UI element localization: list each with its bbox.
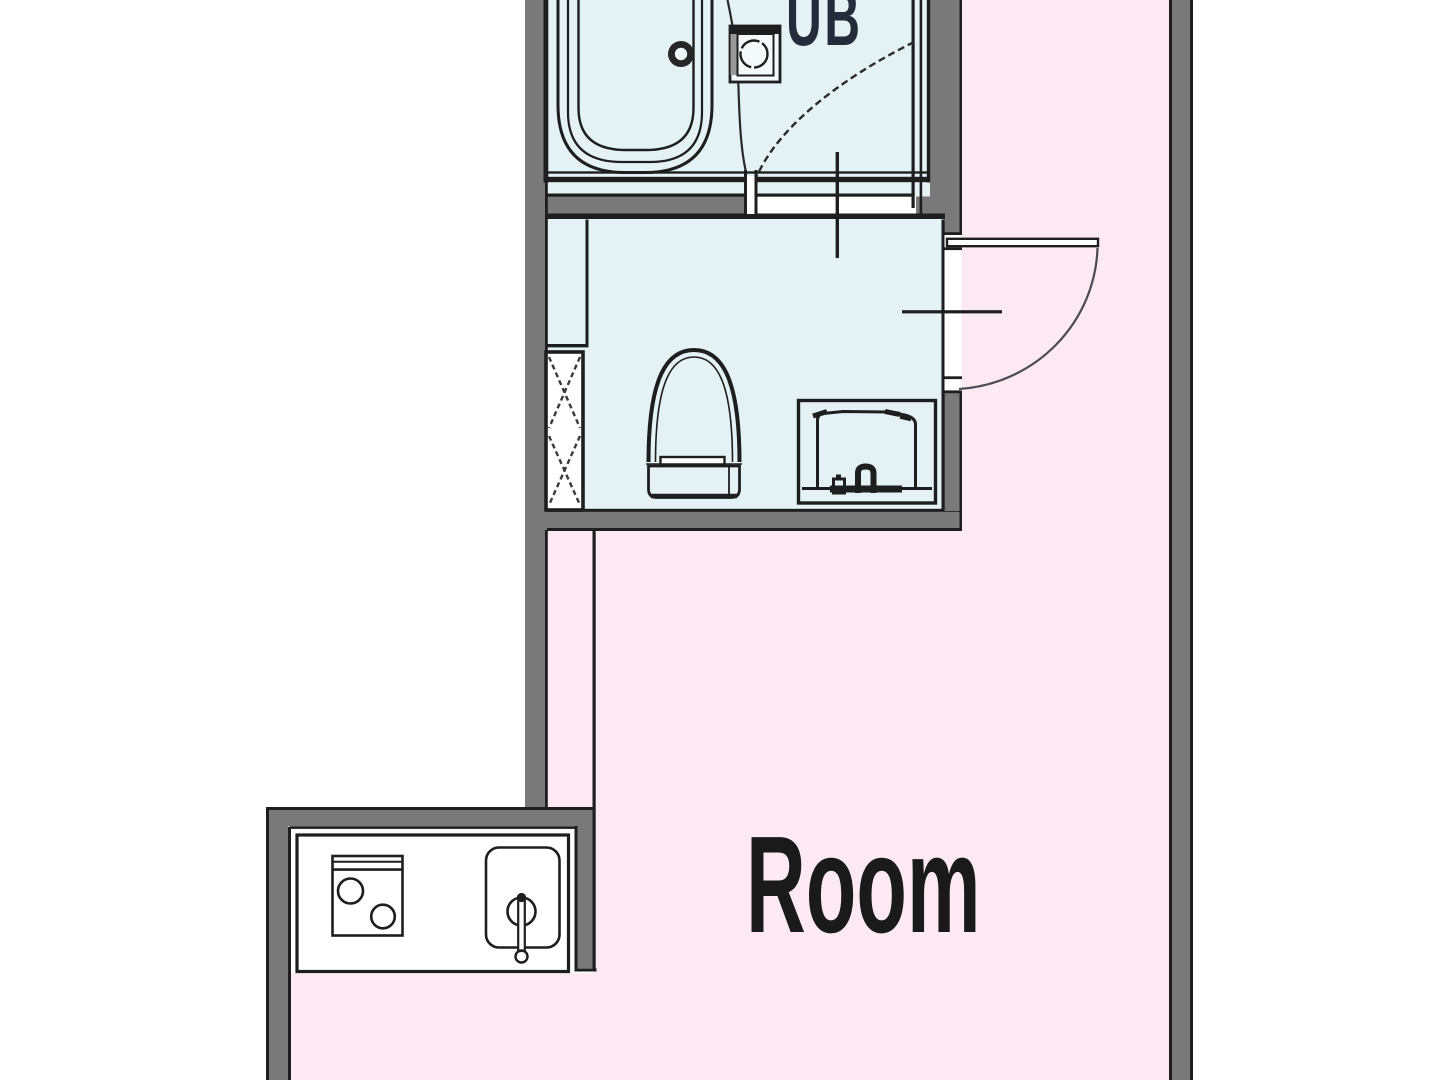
svg-text:UB: UB (786, 0, 863, 63)
svg-text:Room: Room (746, 808, 981, 962)
